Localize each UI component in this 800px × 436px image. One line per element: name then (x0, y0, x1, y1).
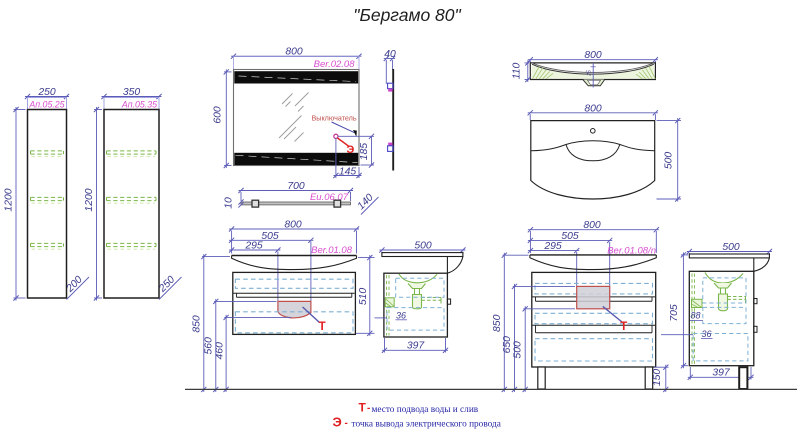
svg-text:850: 850 (191, 315, 202, 333)
svg-text:800: 800 (285, 47, 303, 58)
svg-text:место подвода воды и слив: место подвода воды и слив (372, 405, 479, 415)
svg-text:800: 800 (284, 220, 302, 231)
svg-text:Э: Э (347, 144, 355, 156)
svg-text:Ап.05.35: Ап.05.35 (121, 99, 157, 109)
svg-text:505: 505 (561, 231, 579, 242)
svg-text:25: 25 (587, 70, 593, 77)
svg-text:Ап.05.25: Ап.05.25 (28, 99, 64, 109)
svg-text:Eu.06.07: Eu.06.07 (310, 192, 349, 203)
svg-text:1200: 1200 (4, 188, 15, 211)
svg-text:185: 185 (359, 143, 370, 161)
svg-text:397: 397 (712, 368, 731, 379)
svg-text:-: - (345, 418, 348, 429)
svg-text:500: 500 (722, 242, 740, 253)
svg-text:800: 800 (584, 50, 602, 61)
svg-text:295: 295 (543, 241, 562, 252)
svg-text:88: 88 (691, 311, 701, 321)
svg-text:Т: Т (359, 401, 367, 415)
svg-text:Выключатель: Выключатель (312, 113, 357, 122)
svg-text:505: 505 (261, 231, 279, 242)
svg-text:350: 350 (123, 87, 141, 98)
svg-text:"Бергамо 80": "Бергамо 80" (353, 5, 461, 25)
svg-text:460: 460 (214, 342, 225, 360)
svg-text:T: T (319, 321, 326, 333)
svg-text:110: 110 (512, 63, 523, 80)
svg-text:850: 850 (492, 314, 503, 332)
svg-text:397: 397 (407, 340, 426, 351)
svg-text:-: - (367, 403, 370, 414)
svg-text:Ber.02.08: Ber.02.08 (314, 59, 356, 70)
svg-text:150: 150 (652, 369, 663, 387)
svg-text:36: 36 (702, 329, 712, 339)
svg-text:10: 10 (224, 197, 235, 209)
svg-text:40: 40 (384, 49, 396, 60)
svg-text:500: 500 (664, 152, 675, 170)
svg-text:650: 650 (502, 336, 513, 354)
svg-text:705: 705 (669, 304, 680, 322)
svg-text:800: 800 (583, 220, 601, 231)
svg-text:Ber.01.08: Ber.01.08 (311, 245, 353, 256)
svg-text:точка вывода электрического пр: точка вывода электрического провода (352, 419, 501, 429)
svg-text:510: 510 (358, 288, 369, 306)
svg-text:145: 145 (339, 166, 357, 177)
svg-text:500: 500 (513, 341, 524, 359)
svg-text:560: 560 (203, 337, 214, 355)
svg-text:Э: Э (333, 415, 342, 430)
svg-text:500: 500 (414, 241, 432, 252)
svg-text:T: T (620, 321, 627, 333)
svg-text:295: 295 (244, 241, 263, 252)
svg-text:36: 36 (396, 310, 406, 320)
svg-text:1200: 1200 (84, 188, 95, 211)
svg-text:250: 250 (37, 87, 56, 98)
svg-text:600: 600 (213, 106, 224, 124)
svg-text:800: 800 (584, 103, 602, 114)
svg-text:700: 700 (287, 181, 305, 192)
